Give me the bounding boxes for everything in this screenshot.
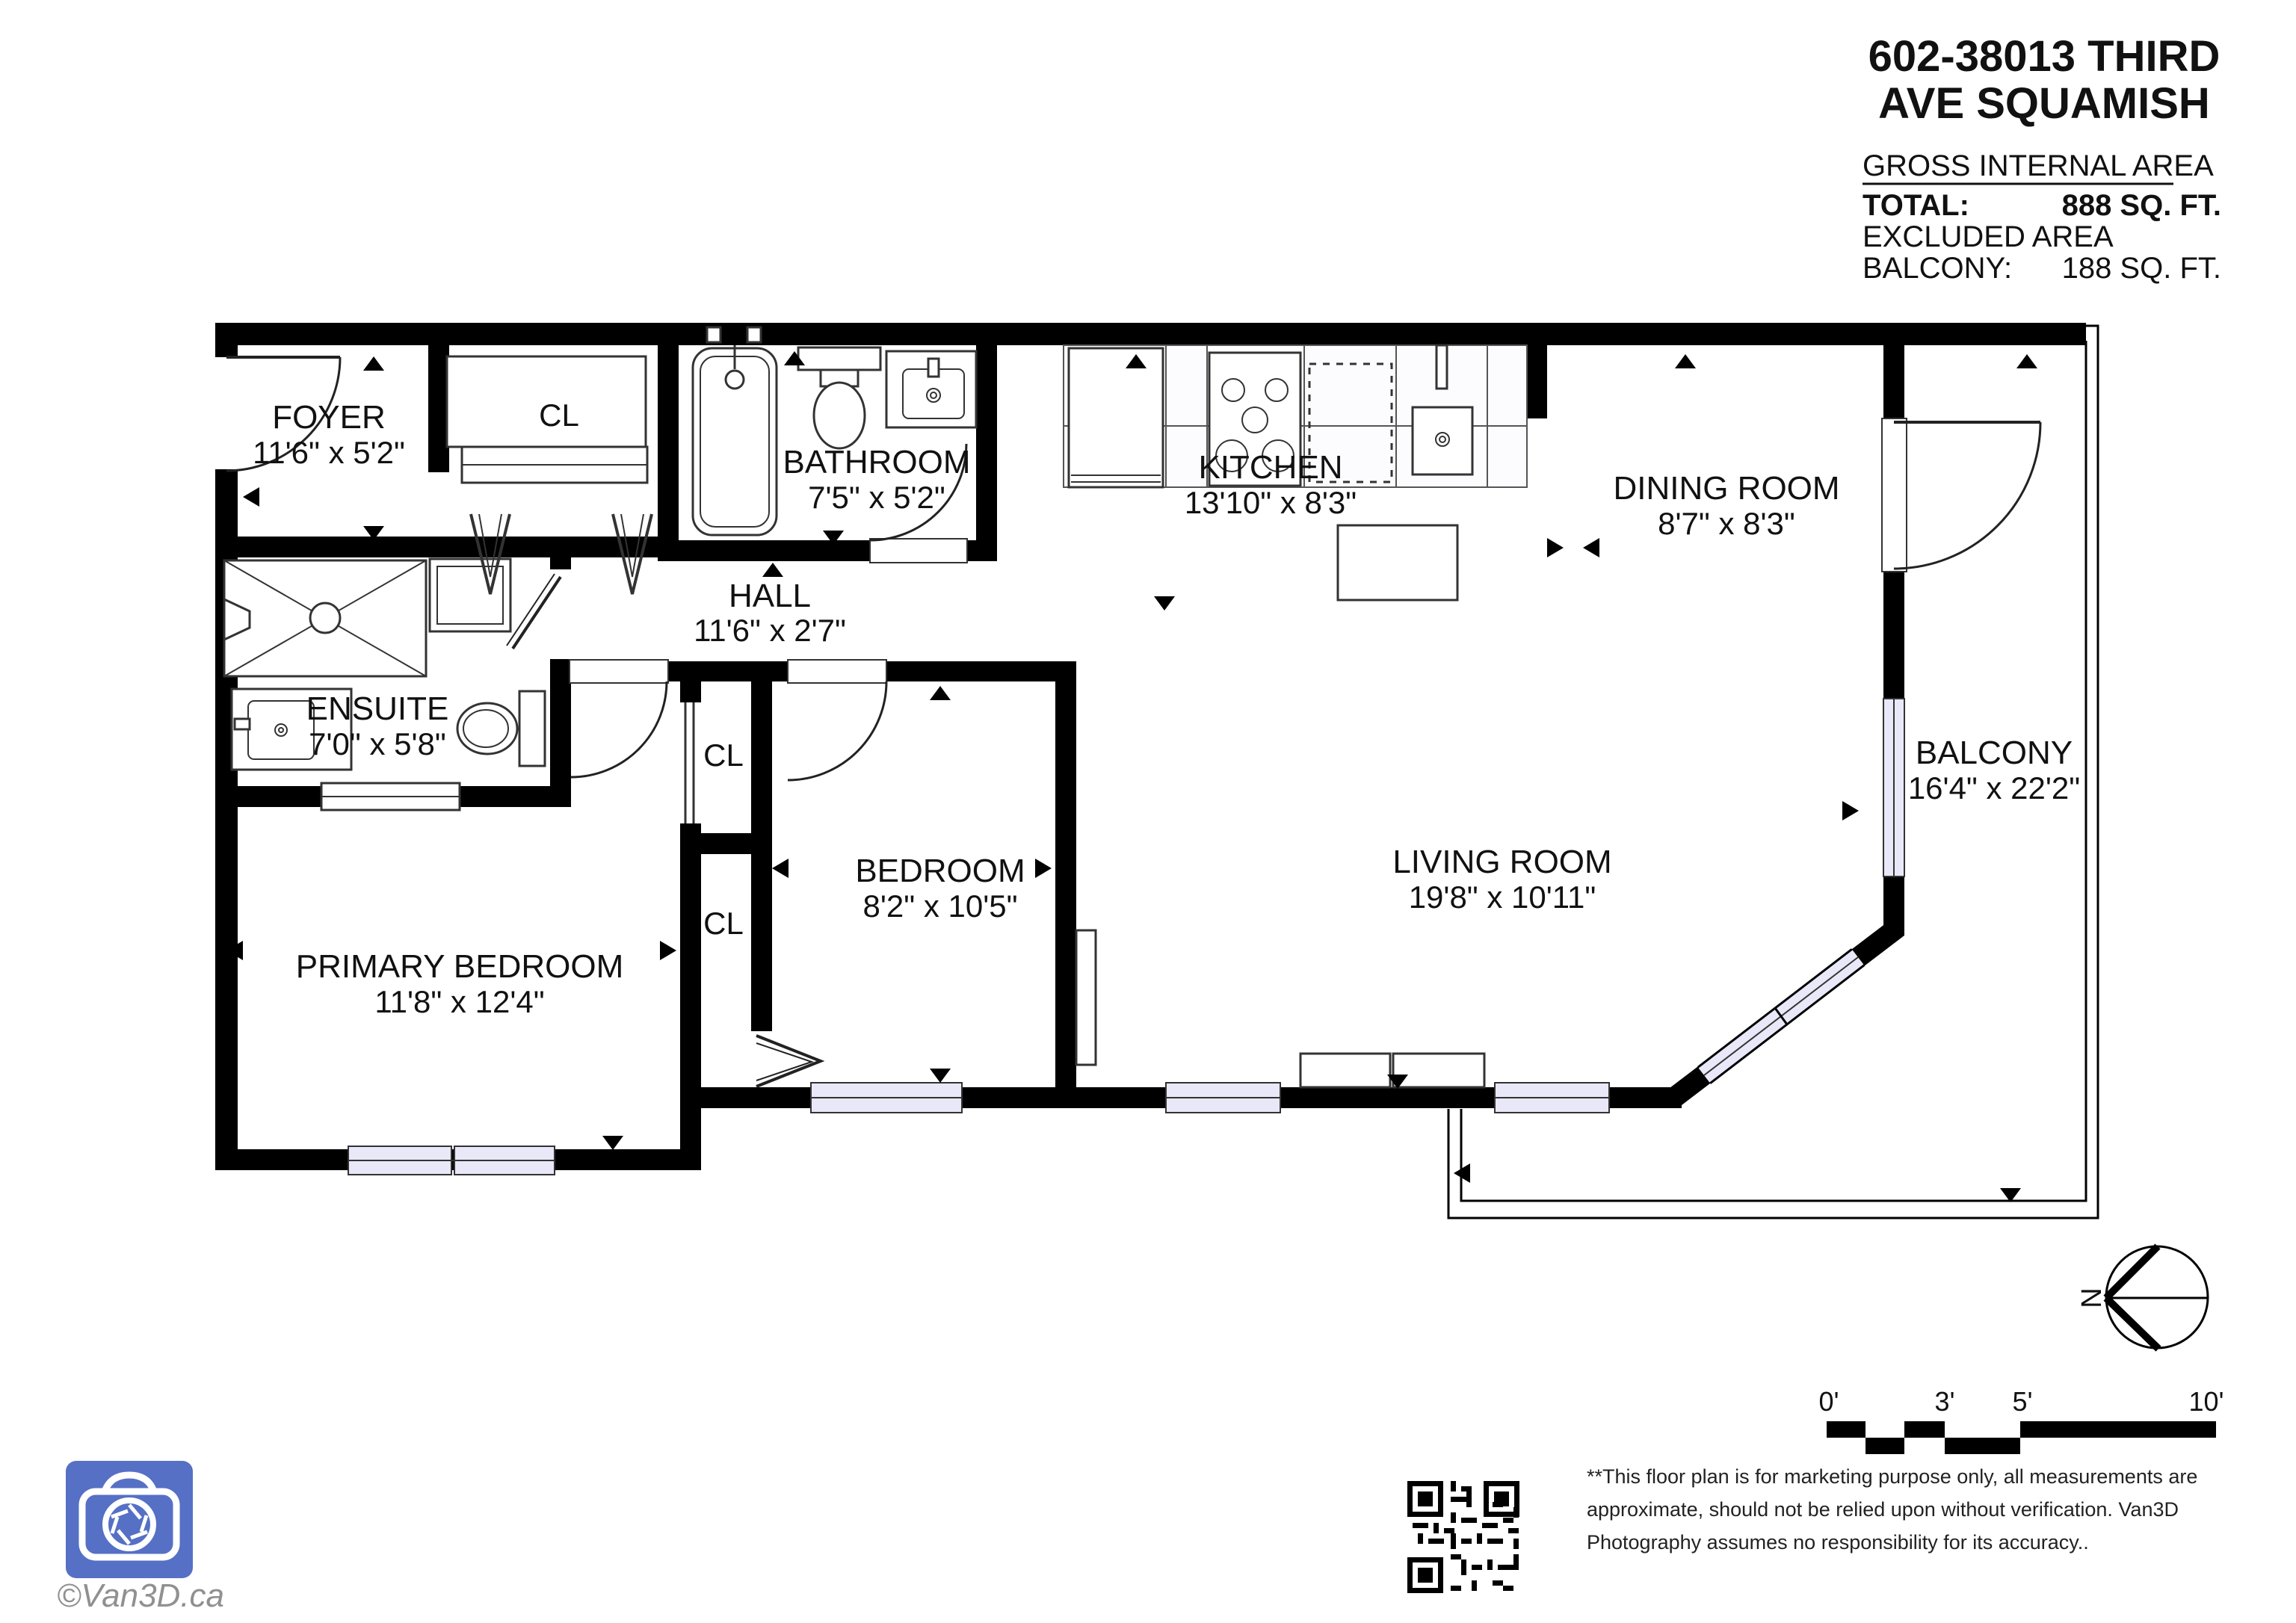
toilet-ensuite (457, 691, 545, 766)
compass-north-label: N (2076, 1287, 2108, 1308)
total-label: TOTAL: (1863, 189, 1969, 222)
floor-plan-canvas: FOYER 11'6" x 5'2" CL BATHROOM 7'5" x 5'… (0, 0, 2296, 1623)
closet-upper-slider (680, 702, 701, 823)
copyright-text: ©Van3D.ca (57, 1577, 224, 1614)
wall-top (215, 323, 2086, 345)
balcony-area-label: BALCONY: (1863, 252, 2012, 285)
scale-tick-10: 10' (2189, 1386, 2224, 1417)
wall-bathroom-bottom-left (658, 540, 871, 561)
toilet-bathroom (798, 347, 880, 448)
wall-ensuite-bottom-left (215, 786, 321, 807)
label-hall: HALL (729, 578, 811, 614)
wall-hall-bottom-left (701, 661, 788, 681)
wall-closet-separator (680, 833, 772, 854)
page-title-line1: 602-38013 THIRD (1868, 32, 2221, 81)
label-kitchen: KITCHEN (1198, 449, 1342, 486)
wall-bedroom-right (1055, 661, 1076, 1108)
excluded-label: EXCLUDED AREA (1863, 220, 2114, 253)
shower-ensuite (224, 560, 426, 676)
dims-hall: 11'6" x 2'7" (694, 613, 846, 648)
page-title-line2: AVE SQUAMISH (1878, 79, 2210, 128)
dims-foyer: 11'6" x 5'2" (253, 435, 405, 470)
window-primary-bedroom (348, 1146, 555, 1175)
window-living-bottom-1 (1166, 1083, 1280, 1113)
dims-dining-room: 8'7" x 8'3" (1658, 506, 1795, 541)
floor-plan-page: FOYER 11'6" x 5'2" CL BATHROOM 7'5" x 5'… (0, 0, 2296, 1623)
fridge (1069, 348, 1163, 487)
total-value: 888 SQ. FT. (2062, 189, 2221, 222)
scale-tick-5: 5' (2013, 1386, 2033, 1417)
disclaimer: **This floor plan is for marketing purpo… (1587, 1465, 2197, 1554)
sofa-left (1300, 1054, 1390, 1087)
label-closet-upper: CL (703, 738, 744, 773)
dims-balcony: 16'4" x 22'2" (1908, 770, 2080, 806)
bathtub (693, 327, 777, 535)
qr-code (1402, 1476, 1525, 1598)
ensuite-slider (321, 783, 460, 810)
window-bedroom-bottom (811, 1083, 962, 1113)
wall-kitchen-stub (1525, 344, 1547, 418)
wall-left-above-entry (215, 345, 238, 357)
dims-kitchen: 13'10" x 8'3" (1185, 485, 1357, 520)
label-closet-lower: CL (703, 906, 744, 941)
label-bathroom: BATHROOM (783, 444, 971, 480)
closet-lower-bifold (756, 1036, 821, 1086)
wall-bedroom-left-upper (751, 681, 772, 833)
wall-hall-bottom-right (886, 661, 1076, 681)
label-foyer: FOYER (272, 399, 386, 436)
ensuite-door (507, 569, 573, 659)
label-balcony: BALCONY (1916, 735, 2073, 771)
console (1076, 930, 1096, 1065)
scale-bar: 0' 3' 5' 10' (1819, 1386, 2224, 1454)
compass: N (2076, 1246, 2208, 1349)
balcony-door (1882, 418, 2040, 572)
label-bedroom: BEDROOM (855, 853, 1025, 889)
sink-bathroom (886, 351, 976, 427)
dims-ensuite: 7'0" x 5'8" (309, 726, 446, 761)
label-primary-bedroom: PRIMARY BEDROOM (296, 948, 623, 985)
scale-tick-0: 0' (1819, 1386, 1839, 1417)
dims-bedroom: 8'2" x 10'5" (863, 888, 1018, 924)
wall-bathroom-left (658, 323, 679, 561)
window-living-bottom-2 (1495, 1083, 1609, 1113)
scale-tick-3: 3' (1935, 1386, 1955, 1417)
label-dining-room: DINING ROOM (1613, 470, 1839, 507)
wall-stub-primary-door (667, 661, 701, 681)
sofa-right (1393, 1054, 1484, 1087)
wall-balcony-glass-line (1674, 344, 1894, 1098)
ensuite-shelf-box (430, 559, 510, 631)
bedroom-door (788, 660, 886, 780)
label-ensuite: ENSUITE (306, 690, 449, 727)
dims-primary-bedroom: 11'8" x 12'4" (374, 984, 544, 1019)
window-balcony-vertical (1883, 699, 1904, 877)
dims-bathroom: 7'5" x 5'2" (808, 480, 945, 515)
wall-bedroom-left-lower (751, 854, 772, 1031)
kitchen-island (1338, 525, 1457, 600)
window-balcony-diagonal (1704, 957, 1858, 1075)
disclaimer-line2: approximate, should not be relied upon w… (1587, 1498, 2179, 1521)
wall-bathroom-right (976, 323, 997, 561)
header: 602-38013 THIRD AVE SQUAMISH GROSS INTER… (1863, 32, 2221, 285)
furniture (1076, 930, 1484, 1087)
disclaimer-line3: Photography assumes no responsibility fo… (1587, 1531, 2089, 1554)
wall-foyer-ensuite (215, 537, 679, 557)
dims-living-room: 19'8" x 10'11" (1409, 879, 1596, 915)
balcony-area-value: 188 SQ. FT. (2062, 252, 2221, 285)
primary-bedroom-door (570, 660, 668, 777)
logo: ©Van3D.ca (57, 1461, 224, 1614)
area-heading: GROSS INTERNAL AREA (1863, 149, 2214, 182)
label-foyer-closet: CL (539, 398, 579, 433)
label-living-room: LIVING ROOM (1392, 844, 1611, 880)
disclaimer-line1: **This floor plan is for marketing purpo… (1587, 1465, 2197, 1488)
wall-ensuite-bottom-right (460, 786, 571, 807)
